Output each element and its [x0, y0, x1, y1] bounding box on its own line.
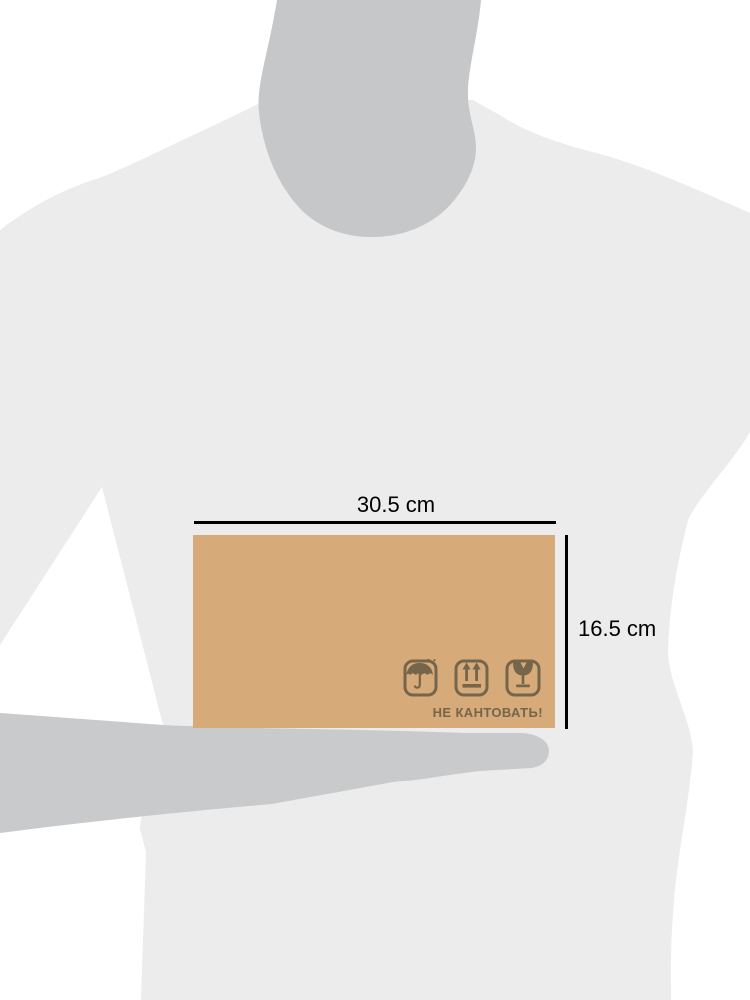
- shipping-marks: [403, 658, 543, 699]
- width-dimension-line: [194, 521, 556, 524]
- fragile-glass-icon: [507, 661, 539, 695]
- below-arm-background: [0, 814, 146, 1000]
- width-dimension-label: 30.5 cm: [316, 492, 476, 518]
- height-dimension-label: 16.5 cm: [578, 616, 656, 642]
- this-side-up-arrows-icon: [456, 661, 487, 695]
- cardboard-box: НЕ КАНТОВАТЬ!: [193, 535, 555, 728]
- keep-dry-umbrella-icon: [405, 659, 436, 695]
- do-not-tilt-label: НЕ КАНТОВАТЬ!: [433, 705, 543, 720]
- height-dimension-line: [565, 535, 568, 729]
- size-comparison-illustration: НЕ КАНТОВАТЬ! 30.5 cm 16.5 cm: [0, 0, 750, 1000]
